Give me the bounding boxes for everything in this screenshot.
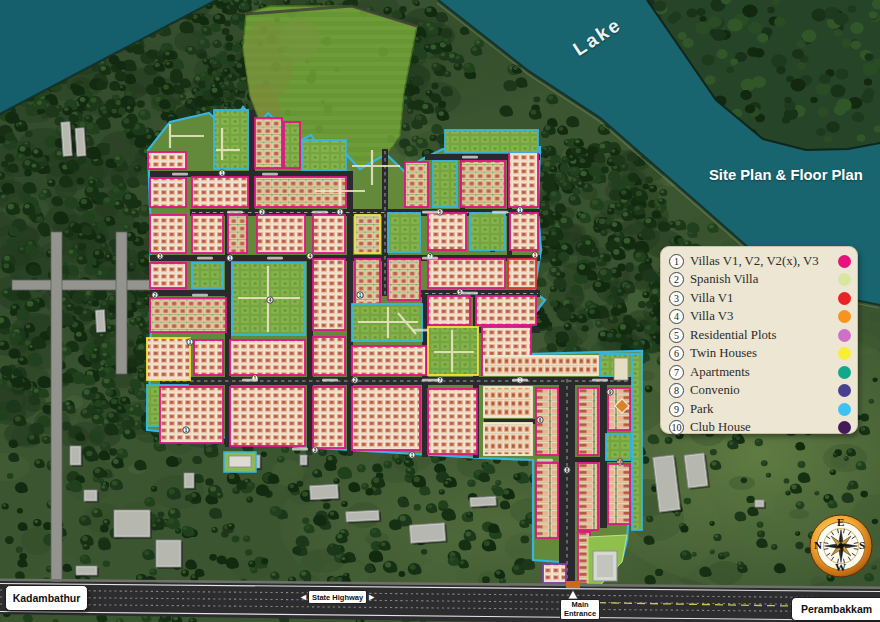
svg-text:3: 3 [159,254,162,259]
svg-text:10: 10 [617,460,623,465]
svg-text:9: 9 [609,390,612,395]
svg-text:1: 1 [189,340,192,345]
svg-text:4: 4 [269,298,272,303]
svg-text:5: 5 [439,210,442,215]
svg-text:2: 2 [154,293,157,298]
svg-text:5: 5 [459,290,462,295]
svg-text:1: 1 [359,293,362,298]
svg-text:6: 6 [539,418,542,423]
svg-text:1: 1 [221,171,224,176]
svg-text:8: 8 [566,468,569,473]
svg-text:7: 7 [439,378,442,383]
svg-text:2: 2 [354,378,357,383]
svg-text:3: 3 [314,448,317,453]
svg-text:1: 1 [185,428,188,433]
svg-text:1: 1 [519,208,522,213]
svg-text:1: 1 [534,253,537,258]
svg-text:1: 1 [229,256,232,261]
svg-text:4: 4 [309,254,312,259]
svg-text:1: 1 [339,210,342,215]
svg-text:2: 2 [261,210,264,215]
svg-text:1: 1 [411,453,414,458]
